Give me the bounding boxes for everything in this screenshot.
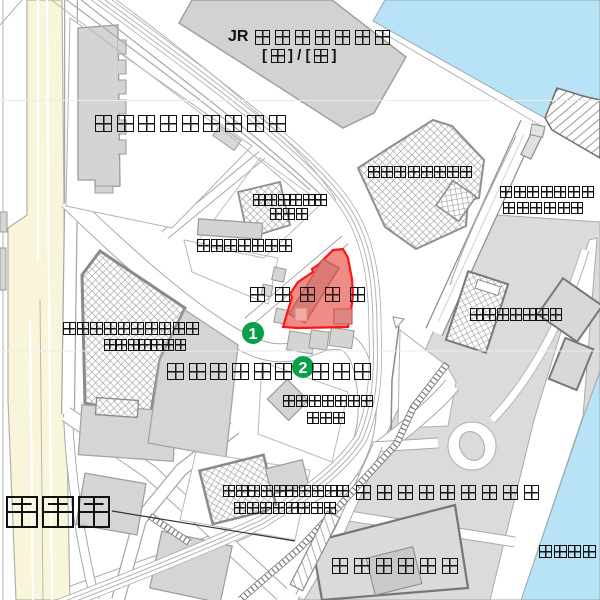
svg-text:1: 1 (249, 326, 258, 343)
svg-text:2: 2 (299, 360, 308, 377)
